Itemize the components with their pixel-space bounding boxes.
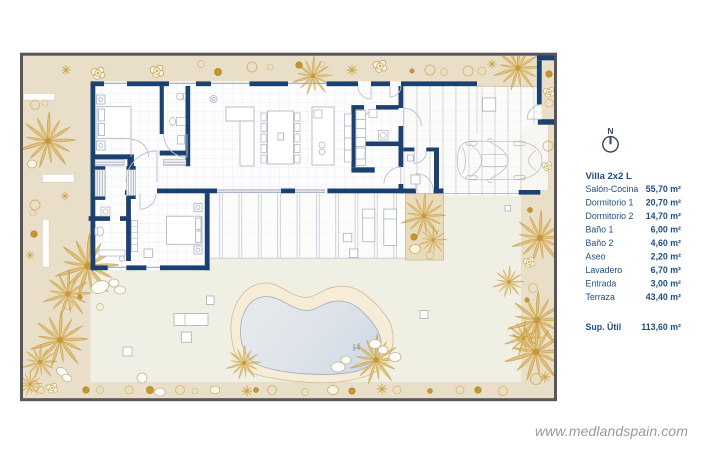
svg-text:Salón-Cocina: Salón-Cocina [586,184,639,194]
svg-text:6,70 m²: 6,70 m² [651,265,681,275]
svg-text:3,00 m²: 3,00 m² [651,279,681,289]
svg-text:2,20 m²: 2,20 m² [651,252,681,262]
svg-text:Terraza: Terraza [586,292,615,302]
svg-text:4,60 m²: 4,60 m² [651,238,681,248]
svg-text:Baño 1: Baño 1 [586,225,614,235]
svg-text:Baño 2: Baño 2 [586,238,614,248]
svg-text:20,70 m²: 20,70 m² [646,198,681,208]
svg-text:43,40 m²: 43,40 m² [646,292,681,302]
svg-text:Dormitorio 1: Dormitorio 1 [586,198,634,208]
svg-text:14,70 m²: 14,70 m² [646,211,681,221]
svg-text:Sup. Útil: Sup. Útil [586,321,622,332]
svg-text:Aseo: Aseo [586,252,606,262]
svg-text:Villa 2x2 L: Villa 2x2 L [586,171,632,182]
svg-text:N: N [607,126,613,136]
svg-text:Entrada: Entrada [586,279,617,289]
svg-text:www.medlandspain.com: www.medlandspain.com [535,423,688,439]
svg-text:Lavadero: Lavadero [586,265,623,275]
svg-text:113,60 m²: 113,60 m² [641,322,681,332]
svg-text:Dormitorio 2: Dormitorio 2 [586,211,634,221]
svg-text:6,00 m²: 6,00 m² [651,225,681,235]
svg-text:55,70 m²: 55,70 m² [646,184,681,194]
